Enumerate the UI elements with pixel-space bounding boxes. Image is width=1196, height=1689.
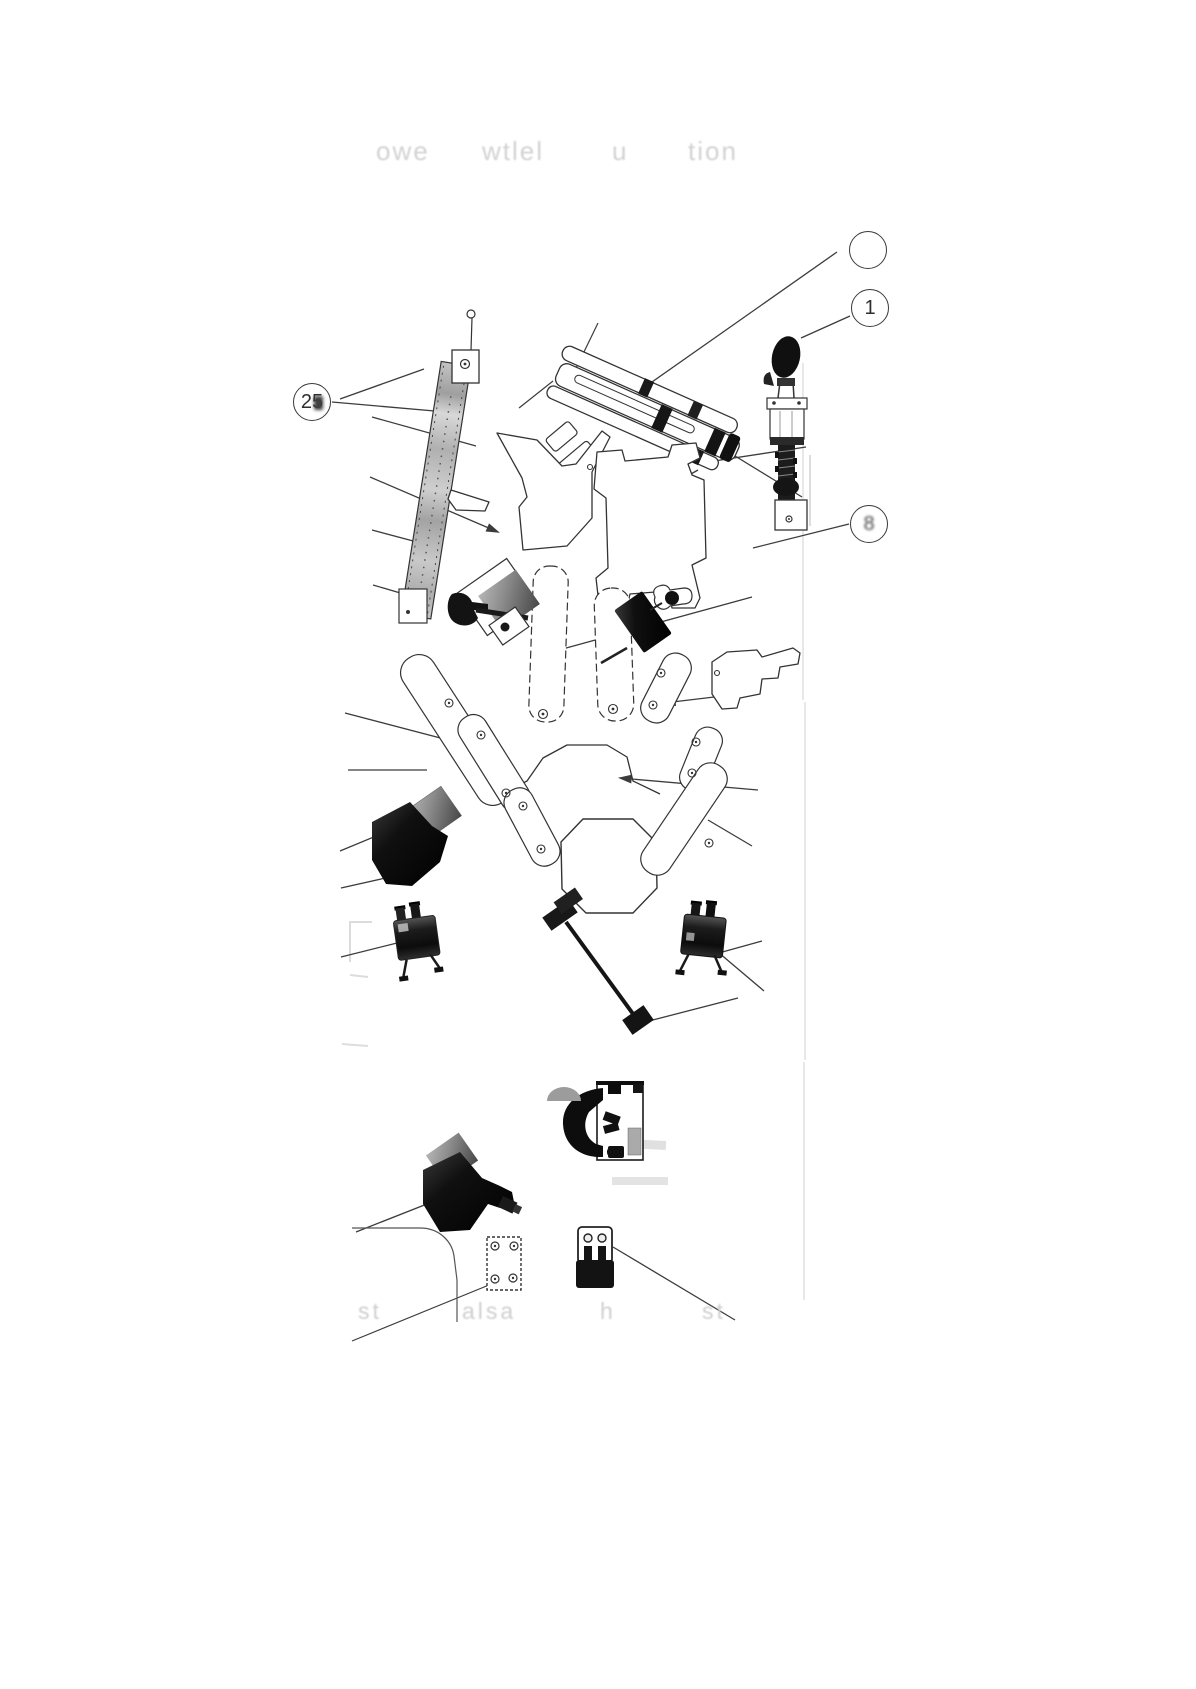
callout-label: 25 — [301, 391, 323, 414]
latch-lever-left — [448, 558, 540, 645]
bracket-block-left — [372, 786, 462, 886]
footer-fragment: alsa — [462, 1298, 516, 1325]
callout-balloon-blank — [849, 231, 887, 269]
angle-bracket — [423, 1133, 523, 1232]
footer-fragment: st — [702, 1298, 726, 1325]
callout-balloon-25: 25 — [293, 383, 331, 421]
connector — [576, 1227, 614, 1288]
guide-rail-strip — [399, 310, 479, 623]
callout-balloon-8: 8 — [850, 505, 888, 543]
motor-assembly — [547, 1083, 644, 1160]
solenoid-right — [675, 898, 734, 980]
footer-fragment: h — [600, 1298, 616, 1325]
footer-fragment: st — [358, 1298, 382, 1325]
callout-balloon-1: 1 — [851, 289, 889, 327]
scanned-manual-page: owe wtlel u tion — [0, 0, 1196, 1689]
solenoid-left — [389, 899, 444, 982]
callout-label: 8 — [863, 513, 874, 536]
exploded-parts-diagram — [0, 0, 1196, 1689]
chassis-slots — [394, 565, 733, 881]
callout-label: 1 — [864, 297, 875, 320]
